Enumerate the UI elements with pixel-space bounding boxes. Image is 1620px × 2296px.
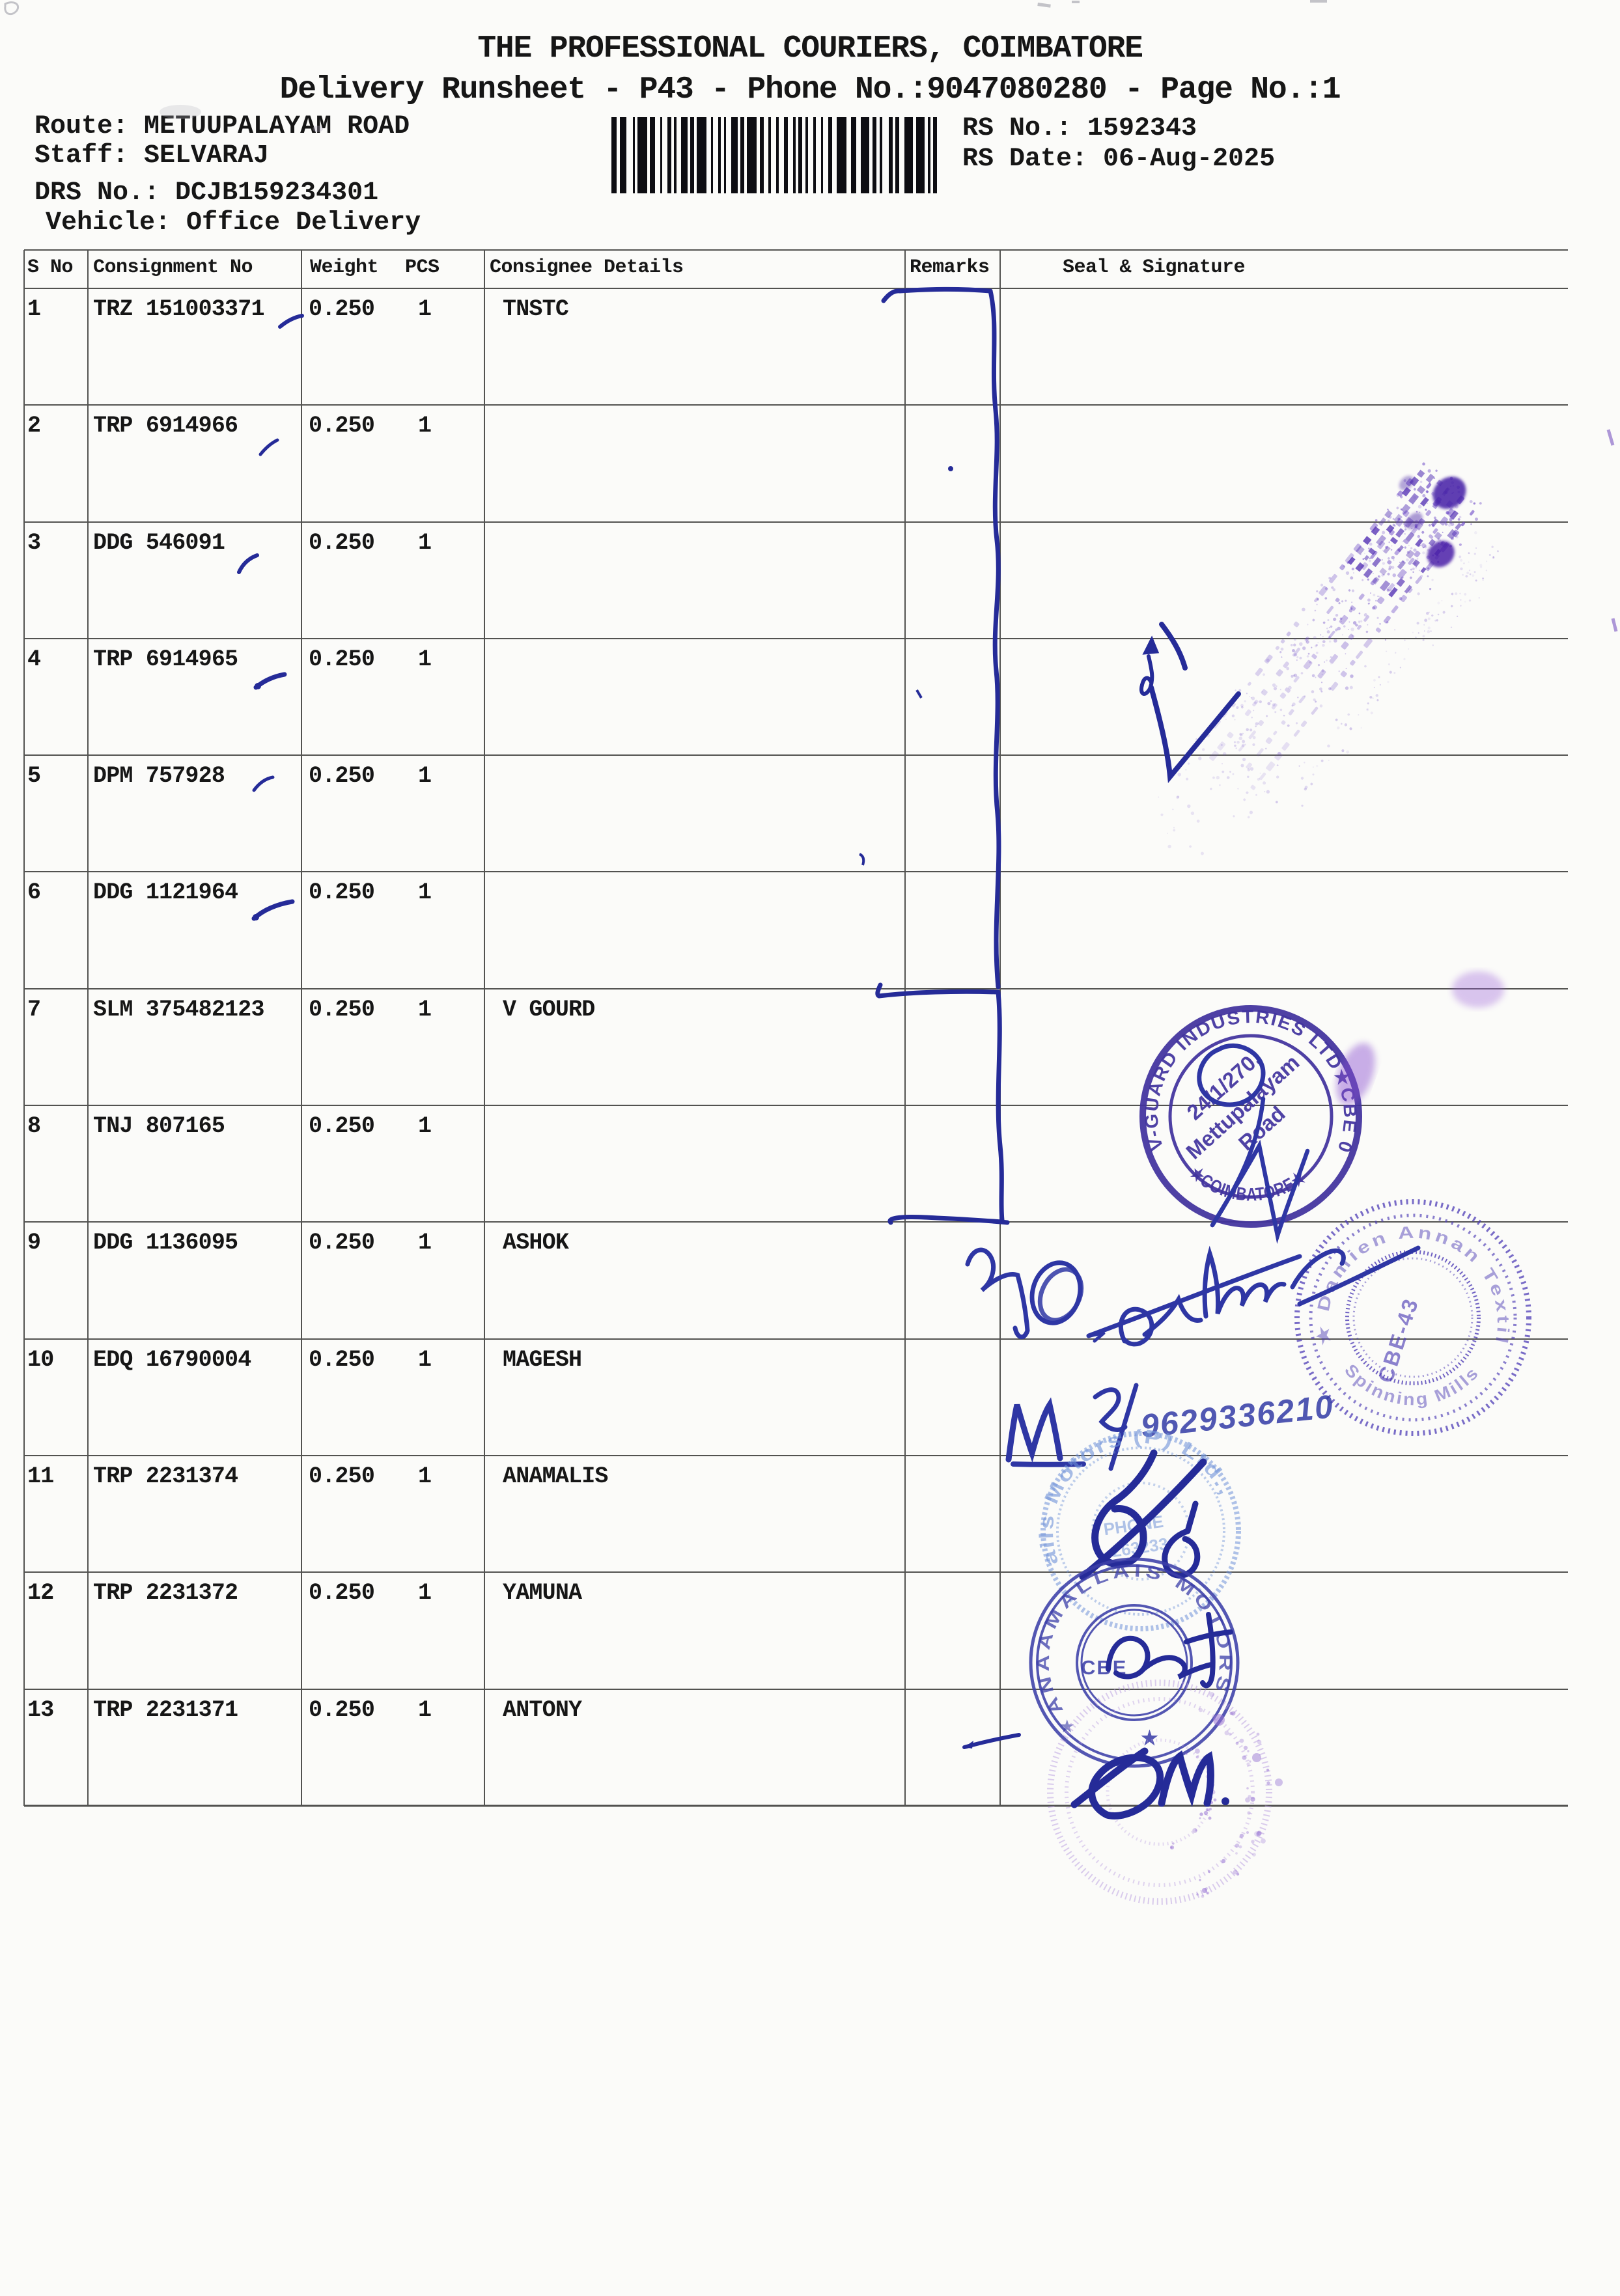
svg-text:★: ★ — [1141, 1728, 1158, 1749]
svg-text:CBE-43: CBE-43 — [1373, 1294, 1423, 1385]
svg-text:★ Damien Annan Textile: ★ Damien Annan Textile — [0, 0, 1513, 1348]
svg-text:V-GUARD INDUSTRIES LTD★CBE 043: V-GUARD INDUSTRIES LTD★CBE 043 — [0, 0, 1360, 1156]
